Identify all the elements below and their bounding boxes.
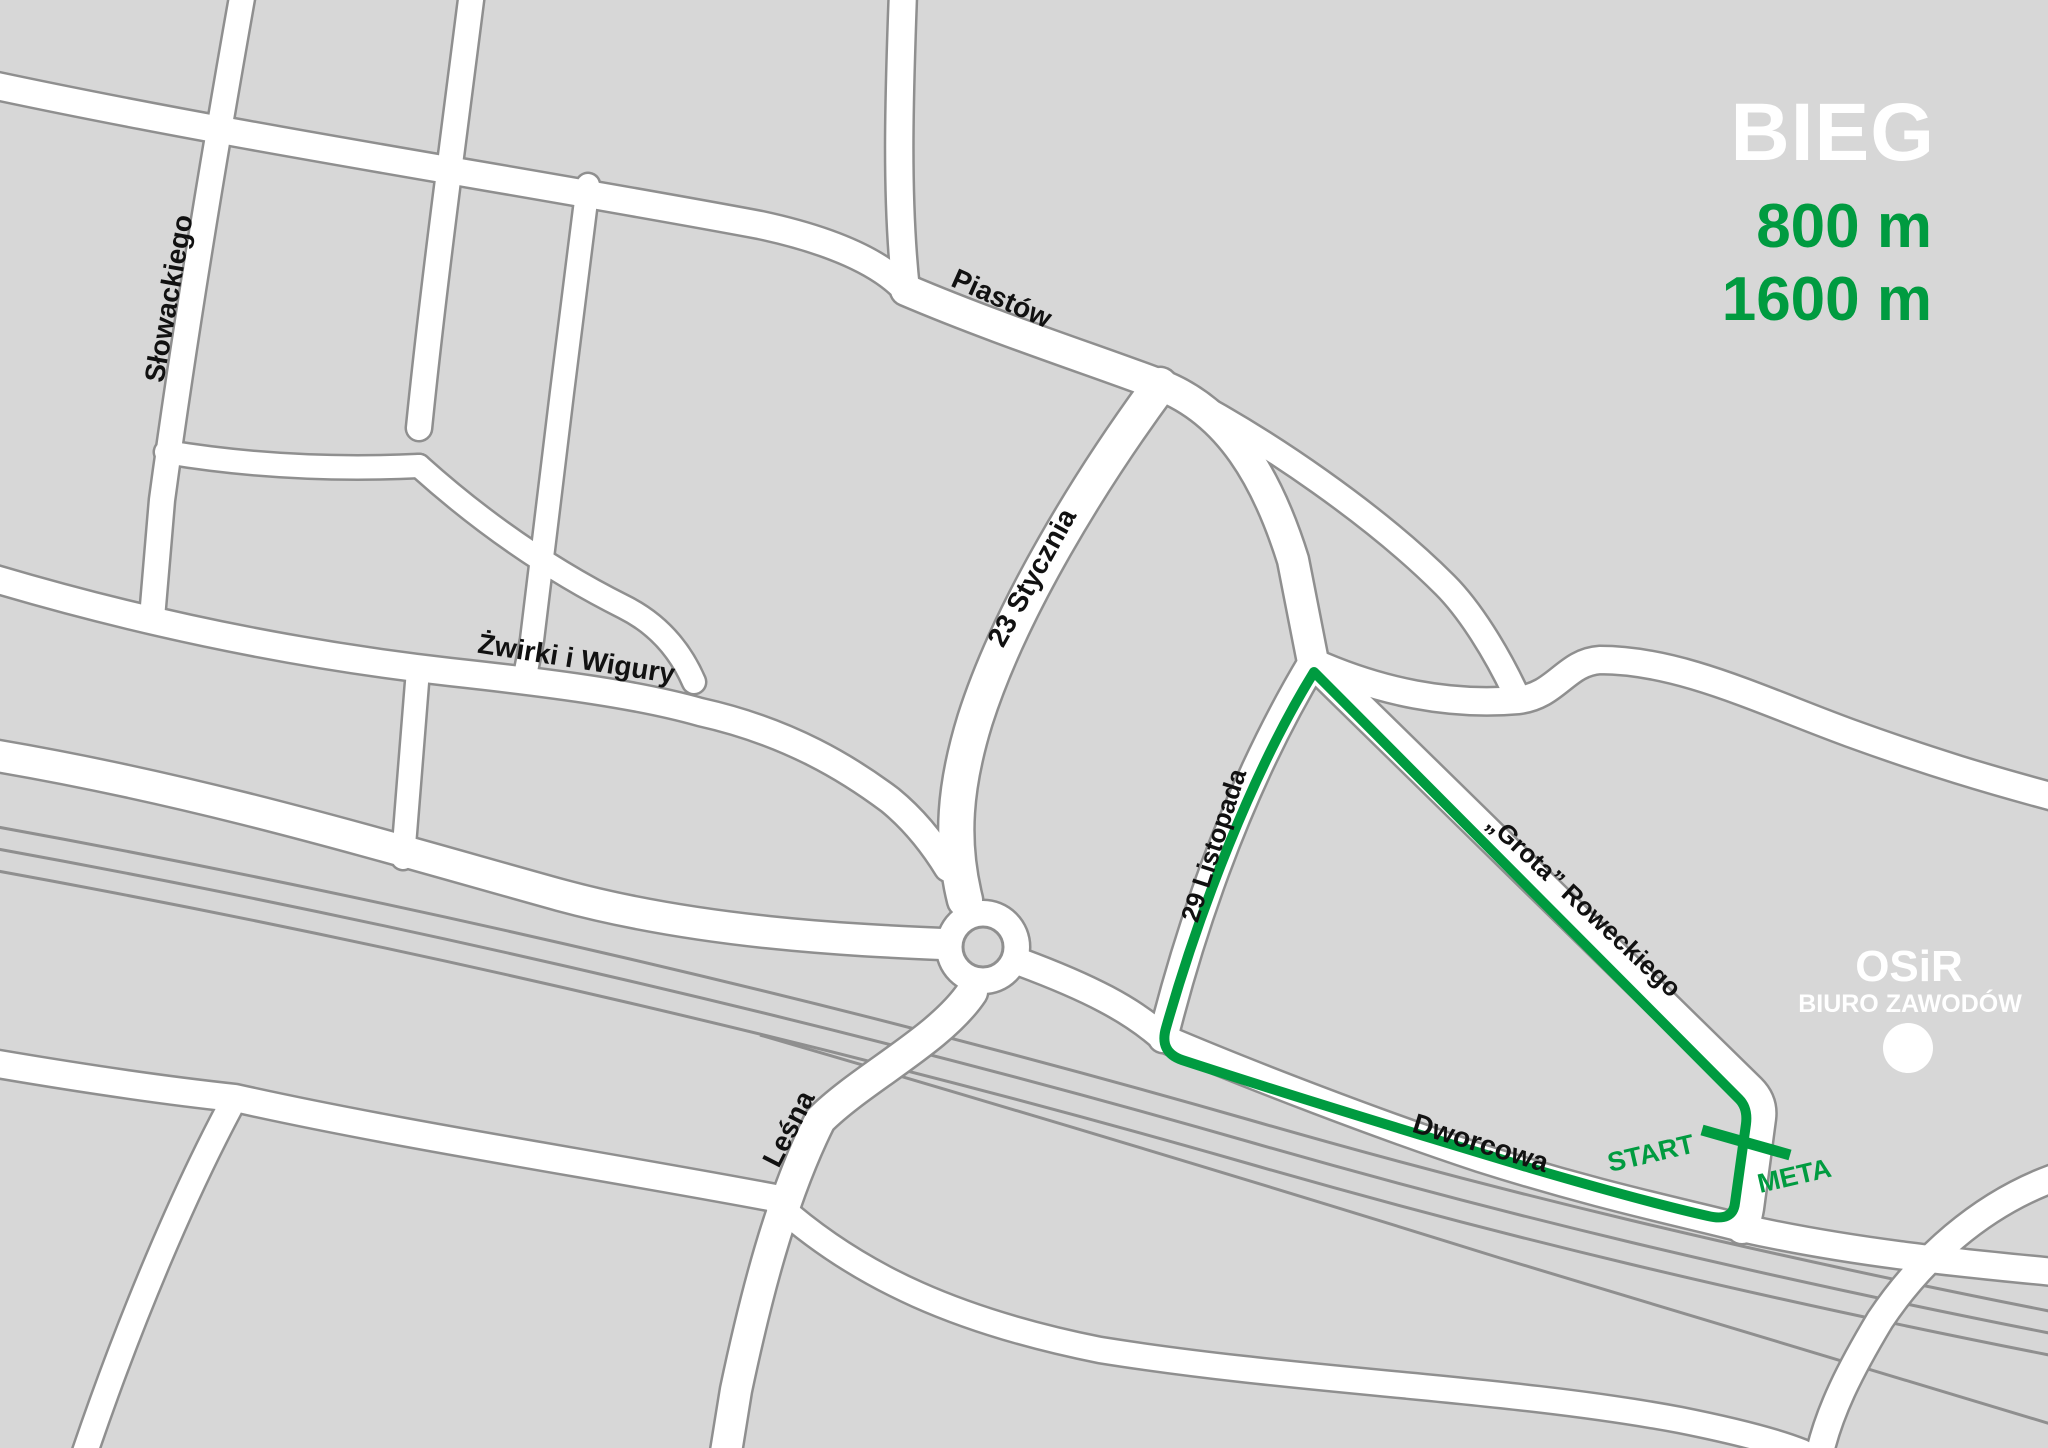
venue-subtitle: BIURO ZAWODÓW: [1798, 988, 2022, 1018]
legend-distance-1600: 1600 m: [1722, 265, 1932, 334]
venue-name: OSiR: [1855, 942, 1963, 991]
roundabout: [937, 901, 1029, 993]
map-canvas: START META Słowackiego Żwirki i Wigury P…: [0, 0, 2048, 1448]
race-map: START META Słowackiego Żwirki i Wigury P…: [0, 0, 2048, 1448]
legend-distance-800: 800 m: [1756, 192, 1932, 261]
venue-marker: [1883, 1023, 1933, 1073]
road-below-zwirki: [403, 670, 418, 858]
road-north: [899, 0, 906, 290]
roundabout-island: [963, 927, 1003, 967]
legend-title: BIEG: [1731, 87, 1935, 178]
